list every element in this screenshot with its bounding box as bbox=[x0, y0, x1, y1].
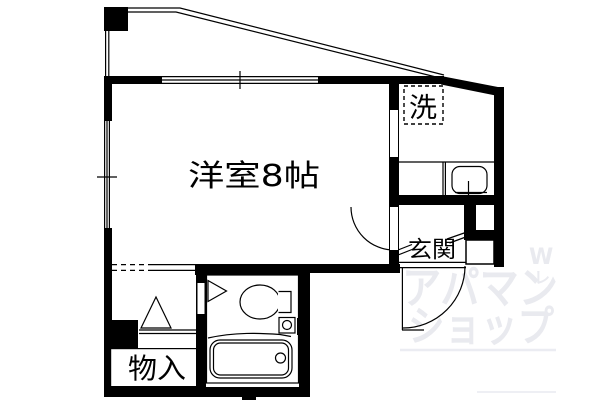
corner-basin-icon bbox=[279, 318, 295, 334]
door-openings bbox=[198, 110, 399, 314]
wall-bath-north bbox=[195, 264, 310, 275]
bathroom-door-triangle-icon bbox=[208, 281, 227, 302]
wall-bottom-stub bbox=[242, 395, 256, 400]
wall-left-upper bbox=[104, 76, 112, 121]
toilet-icon bbox=[240, 285, 291, 319]
eaves-line-outer bbox=[128, 8, 444, 75]
storage-label: 物入 bbox=[128, 352, 186, 385]
bathtub-icon bbox=[210, 340, 292, 378]
bathroom bbox=[207, 275, 299, 383]
closet-area bbox=[139, 297, 197, 334]
watermark-l-mark: レ bbox=[534, 268, 550, 287]
floorplan-svg: アパマン W レ ショップ bbox=[0, 0, 600, 400]
labels: 洋室8帖 洗 玄関 物入 bbox=[128, 93, 456, 385]
watermark-line2: ショップ bbox=[408, 302, 554, 351]
top-window-icon bbox=[162, 71, 318, 89]
wall-bottom bbox=[104, 387, 310, 397]
closet-door-triangle-icon bbox=[141, 297, 171, 328]
entrance-alcove-box bbox=[466, 240, 494, 264]
wall-top-a bbox=[104, 76, 162, 84]
wall-top-b bbox=[318, 76, 444, 84]
room-door-arc-icon bbox=[351, 207, 394, 250]
laundry-label: 洗 bbox=[409, 93, 437, 124]
main-room-label: 洋室8帖 bbox=[188, 159, 320, 194]
bathroom-door-opening bbox=[198, 283, 205, 314]
wall-diagonal bbox=[441, 76, 503, 97]
left-window-icon bbox=[97, 121, 117, 228]
room-door-opening bbox=[390, 207, 398, 250]
wall-pillar-topleft bbox=[104, 7, 128, 31]
floorplan-image: アパマン W レ ショップ bbox=[0, 0, 600, 400]
wall-washroom-south bbox=[389, 195, 504, 205]
entrance-label: 玄関 bbox=[408, 237, 456, 263]
room-south-opening bbox=[112, 265, 196, 271]
washroom-door-opening bbox=[390, 110, 398, 157]
wall-basin-bump bbox=[297, 318, 310, 335]
eaves-line-inner bbox=[128, 12, 438, 78]
wall-entrance-crossbar bbox=[464, 230, 504, 240]
shower-curtain-line bbox=[208, 333, 291, 338]
left-upper-window-icon bbox=[106, 31, 109, 76]
watermark-w-mark: W bbox=[529, 245, 553, 270]
wall-entrance-stub bbox=[464, 205, 476, 234]
